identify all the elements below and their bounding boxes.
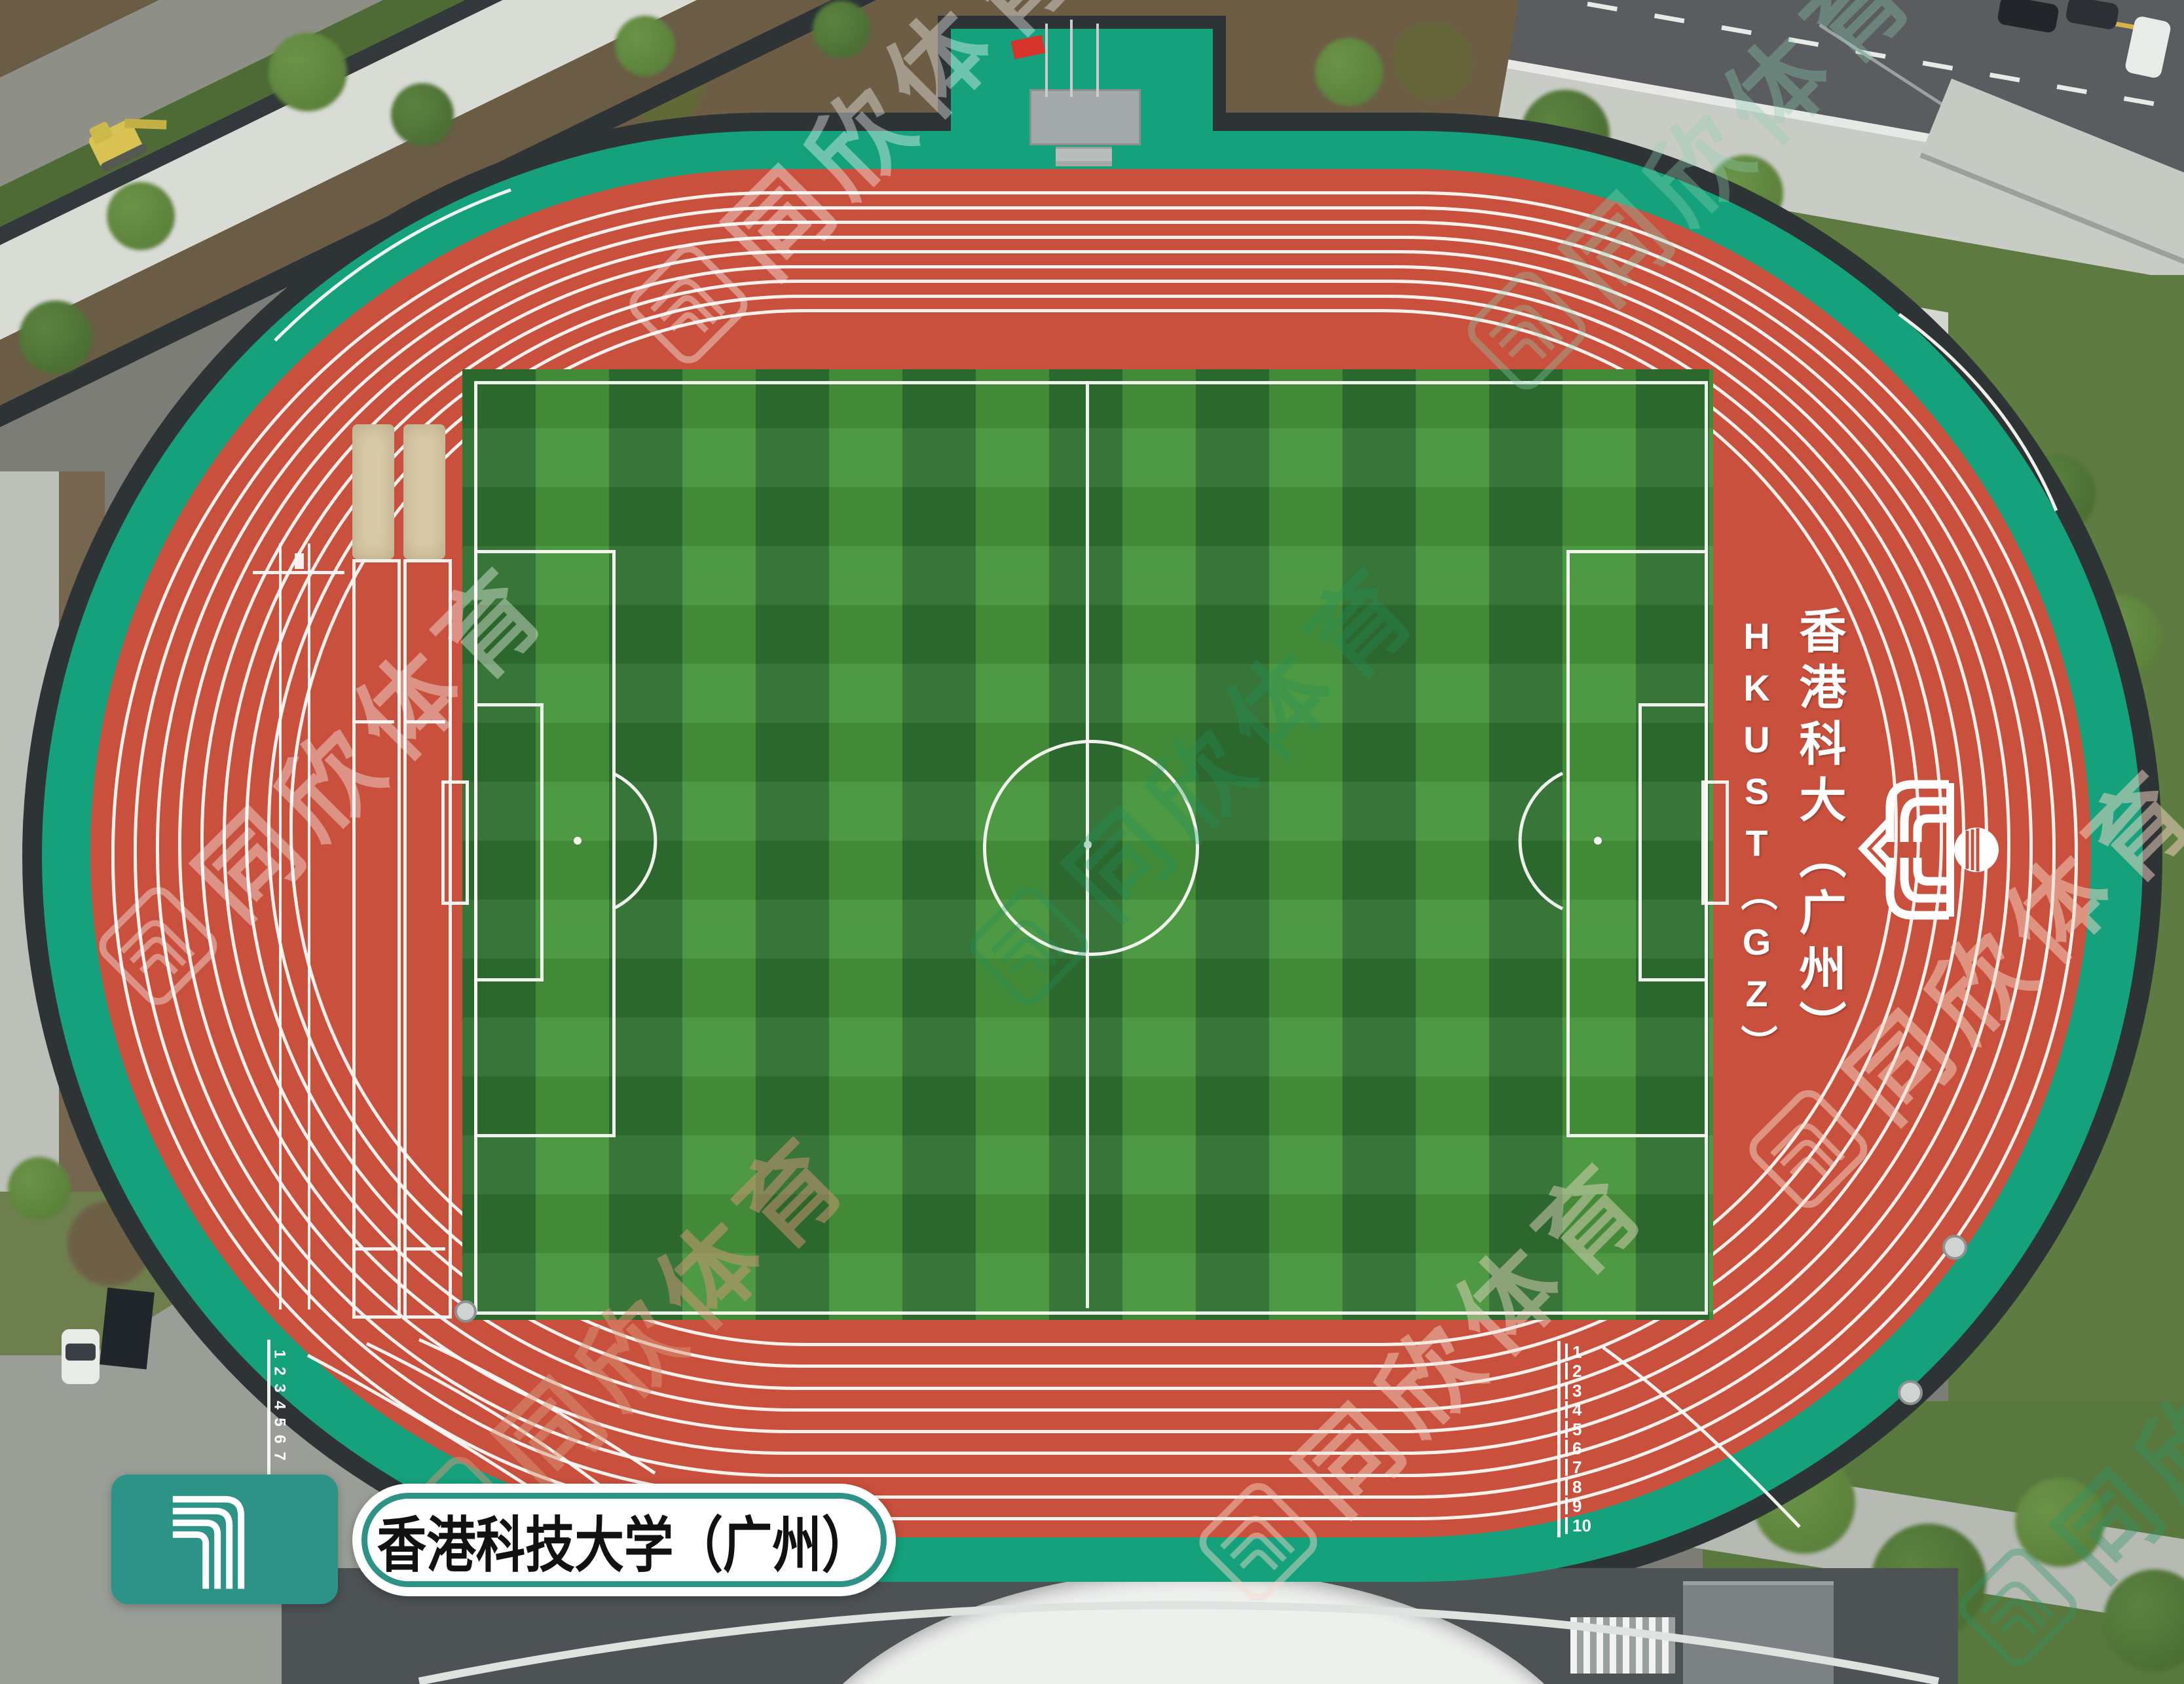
- center-spot: [1084, 841, 1092, 849]
- flagpole-3: [1096, 24, 1099, 97]
- platform-steps: [1056, 147, 1112, 166]
- center-circle: [983, 740, 1199, 956]
- flagpole-2: [1070, 20, 1073, 97]
- badge-title-text: 香港科技大学（广州）: [377, 1497, 871, 1584]
- penalty-spot-left: [574, 837, 582, 845]
- football-pitch: [462, 369, 1713, 1320]
- goal-left: [441, 780, 469, 905]
- tongxin-t-logo-icon: [166, 1480, 284, 1598]
- goal-area-right: [1638, 703, 1708, 981]
- flagpole-1: [1045, 24, 1048, 97]
- goal-area-left: [474, 703, 544, 981]
- badge-title-pill-inner: 香港科技大学（广州）: [361, 1493, 887, 1587]
- aerial-photo-scene: 香港科大（广州） HKUST（GZ） 1234: [0, 0, 2184, 1684]
- badge-title-pill: 香港科技大学（广州）: [352, 1484, 896, 1596]
- goal-right: [1701, 780, 1729, 905]
- flag-platform: [1029, 89, 1141, 145]
- penalty-spot-right: [1594, 837, 1602, 845]
- tongxin-badge-logo-box: [111, 1474, 338, 1604]
